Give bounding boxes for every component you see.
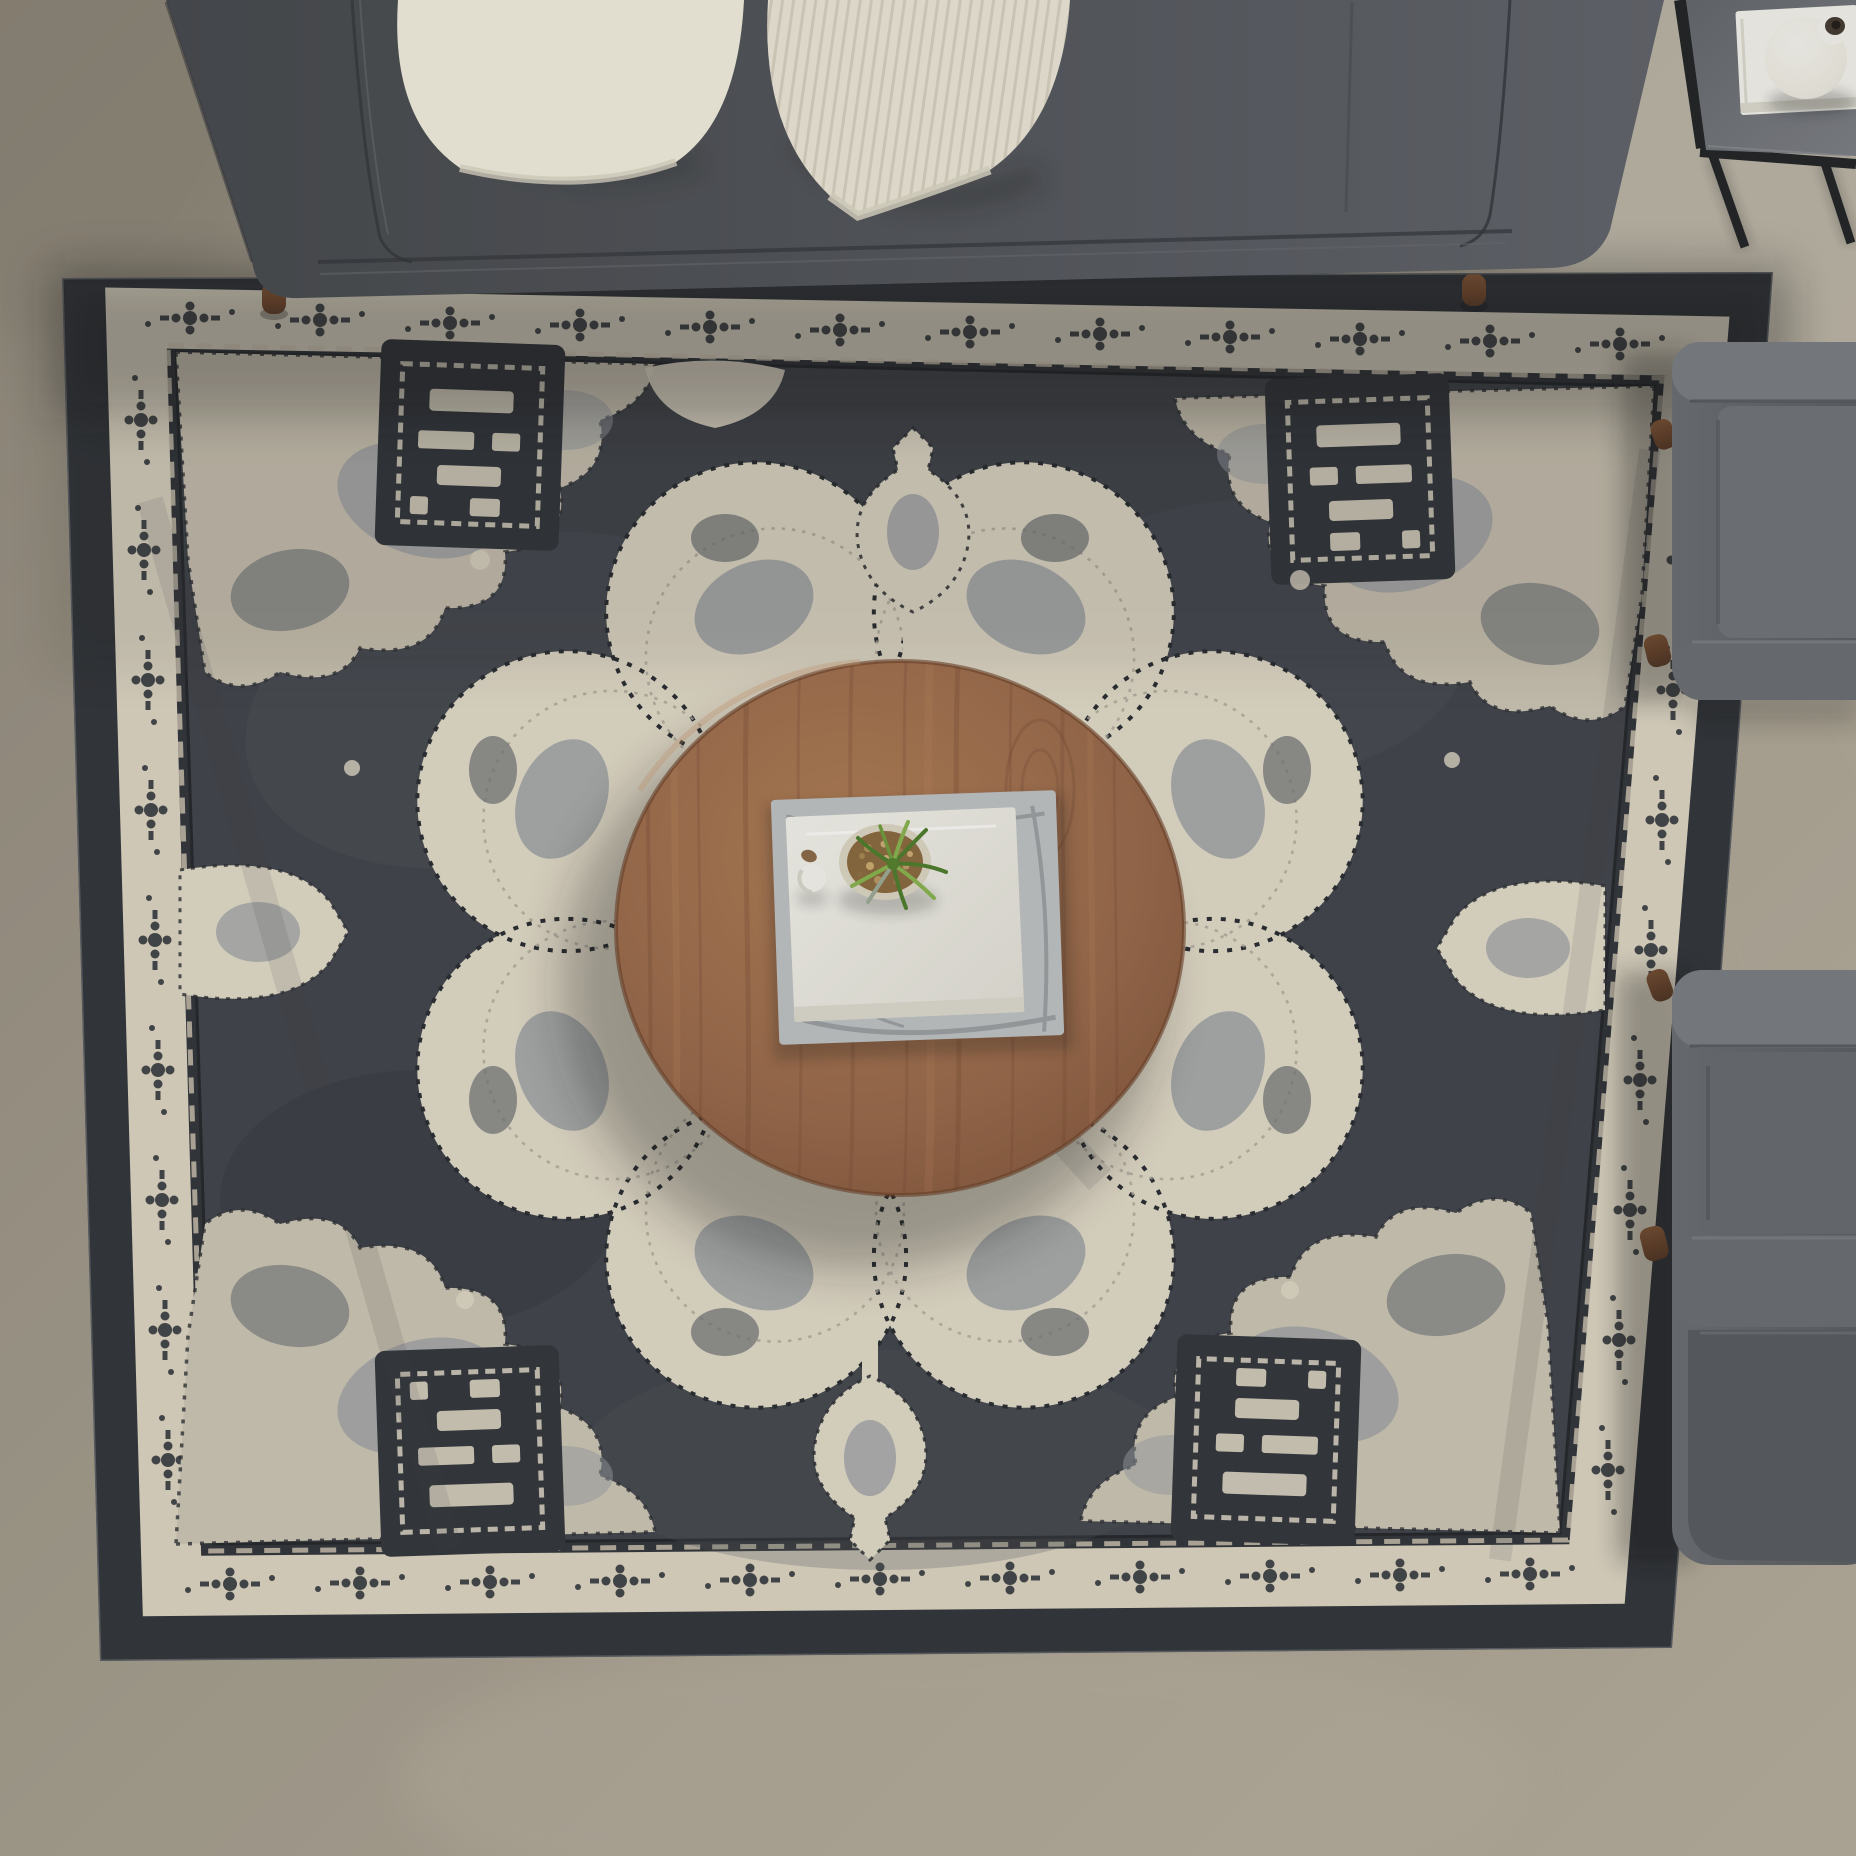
photo-vignette: [0, 0, 1856, 1856]
scene-canvas: [0, 0, 1856, 1856]
living-room-photo: [0, 0, 1856, 1856]
